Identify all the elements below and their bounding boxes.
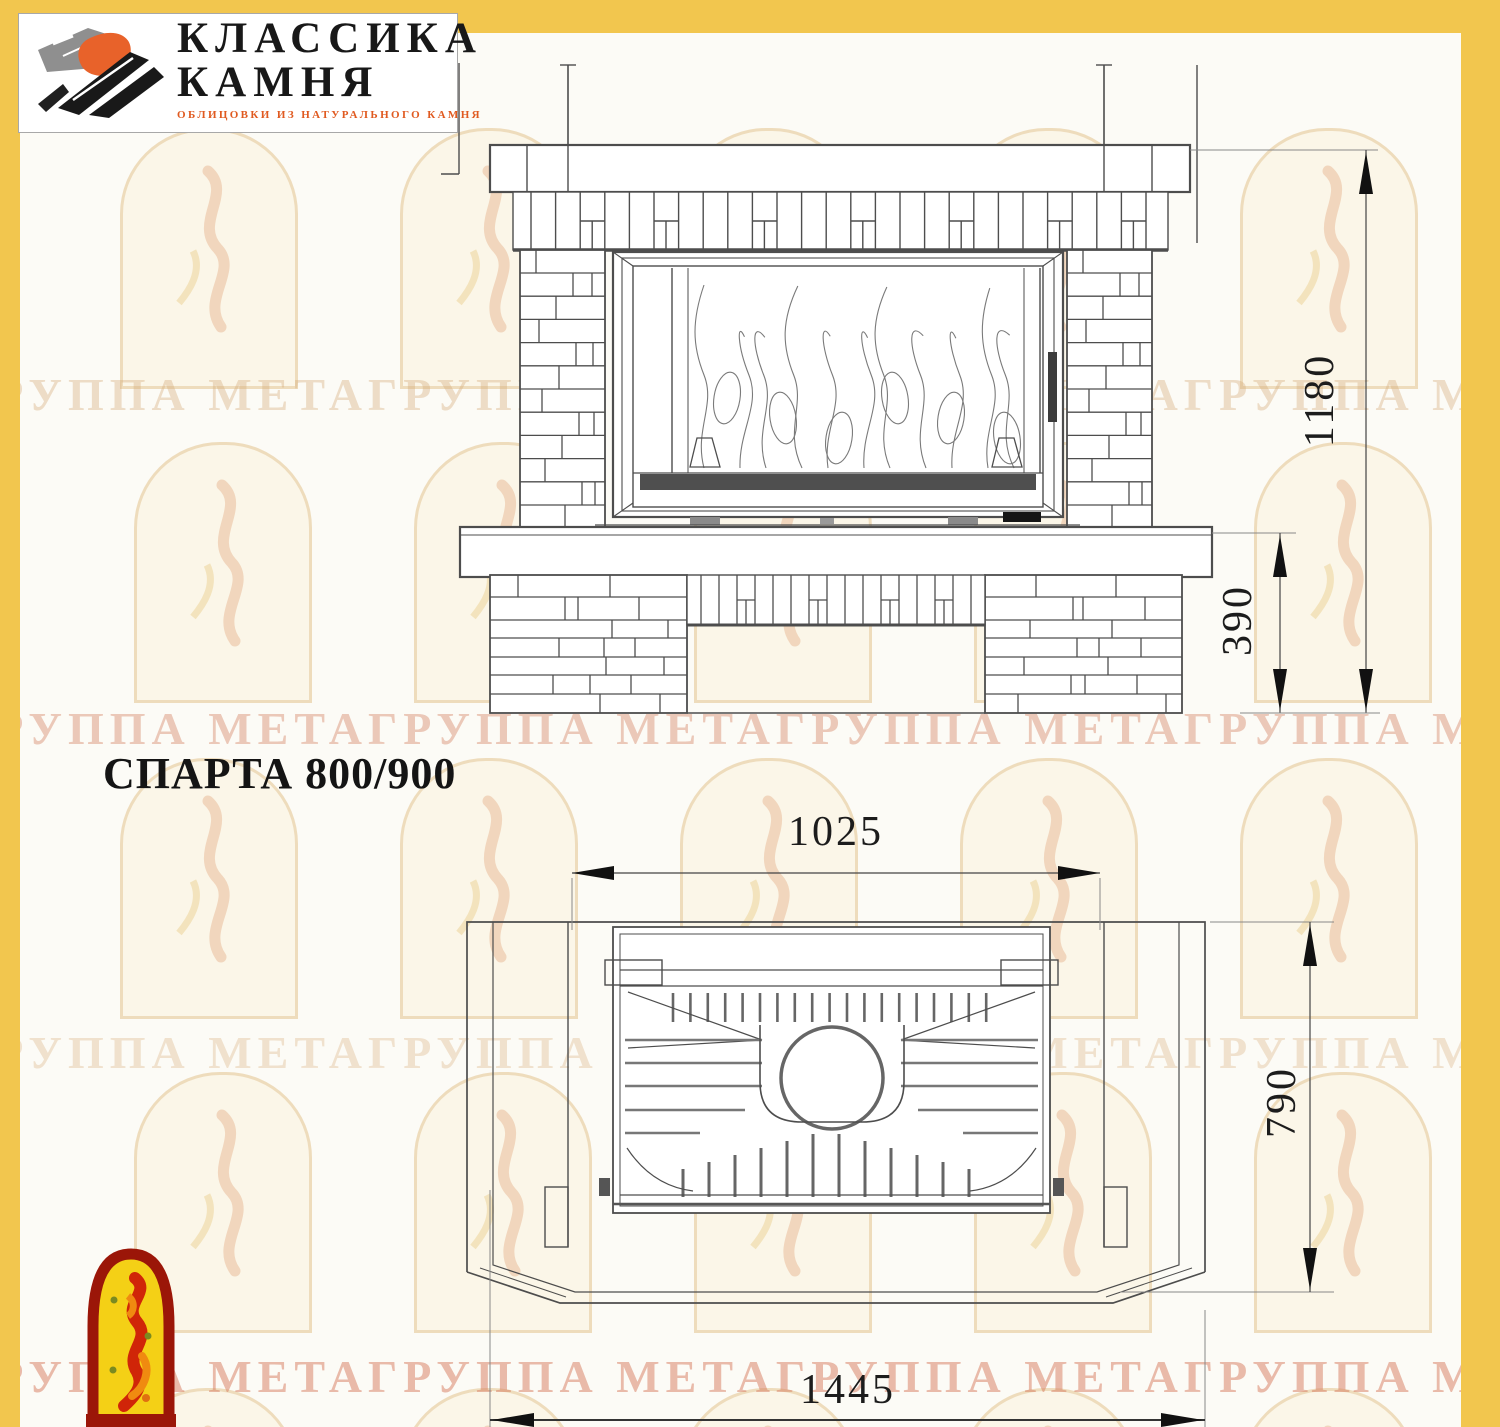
dim-base-height: 390 (1214, 584, 1262, 656)
frame-left-border (0, 0, 20, 1427)
dim-overall-width: 1445 (800, 1366, 896, 1414)
dim-depth: 790 (1258, 1066, 1306, 1138)
model-title: СПАРТА 800/900 (103, 748, 456, 799)
front-view (441, 63, 1212, 713)
dim-insert-width: 1025 (788, 808, 884, 856)
logo-line1: КЛАССИКА (177, 16, 469, 62)
plan-view (467, 922, 1205, 1303)
drawing-page: ГРУППА МЕТАГРУППА МЕТАГРУППА МЕТАГРУППА … (0, 0, 1500, 1427)
logo-subtitle: ОБЛИЦОВКИ ИЗ НАТУРАЛЬНОГО КАМНЯ (177, 109, 469, 121)
logo-line2: КАМНЯ (177, 62, 469, 104)
arch-figure-icon (84, 1238, 178, 1427)
dim-height-total: 1180 (1296, 353, 1344, 447)
technical-drawing (0, 0, 1500, 1427)
frame-right-border (1461, 0, 1500, 1427)
meta-arch-logo (84, 1238, 178, 1427)
stone-graphic-icon (33, 22, 173, 120)
company-logo: КЛАССИКА КАМНЯ ОБЛИЦОВКИ ИЗ НАТУРАЛЬНОГО… (18, 13, 458, 133)
